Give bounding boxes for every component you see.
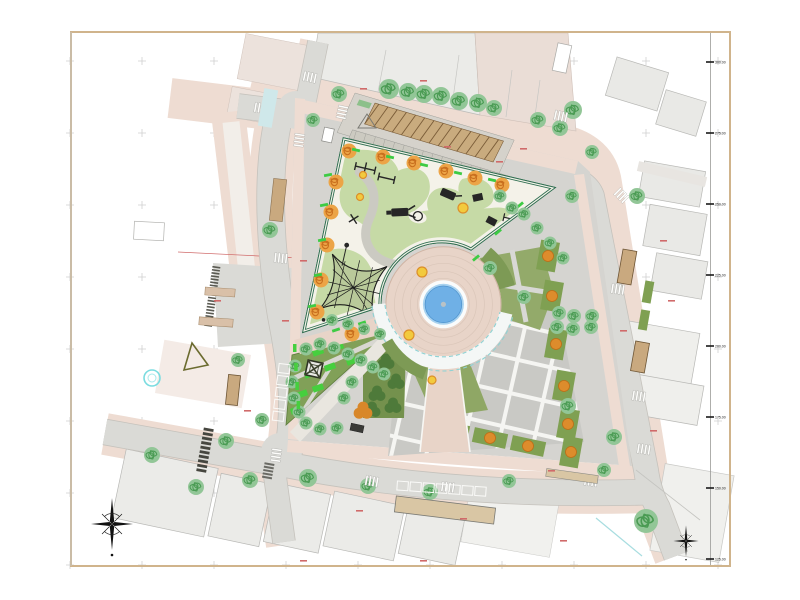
svg-text:225.00: 225.00 xyxy=(715,274,726,278)
svg-text:200.00: 200.00 xyxy=(715,345,726,349)
svg-text:300.00: 300.00 xyxy=(715,61,726,65)
svg-text:275.00: 275.00 xyxy=(715,132,726,136)
svg-text:125.00: 125.00 xyxy=(715,558,726,562)
svg-text:175.00: 175.00 xyxy=(715,416,726,420)
svg-text:150.00: 150.00 xyxy=(715,487,726,491)
svg-text:250.00: 250.00 xyxy=(715,203,726,207)
